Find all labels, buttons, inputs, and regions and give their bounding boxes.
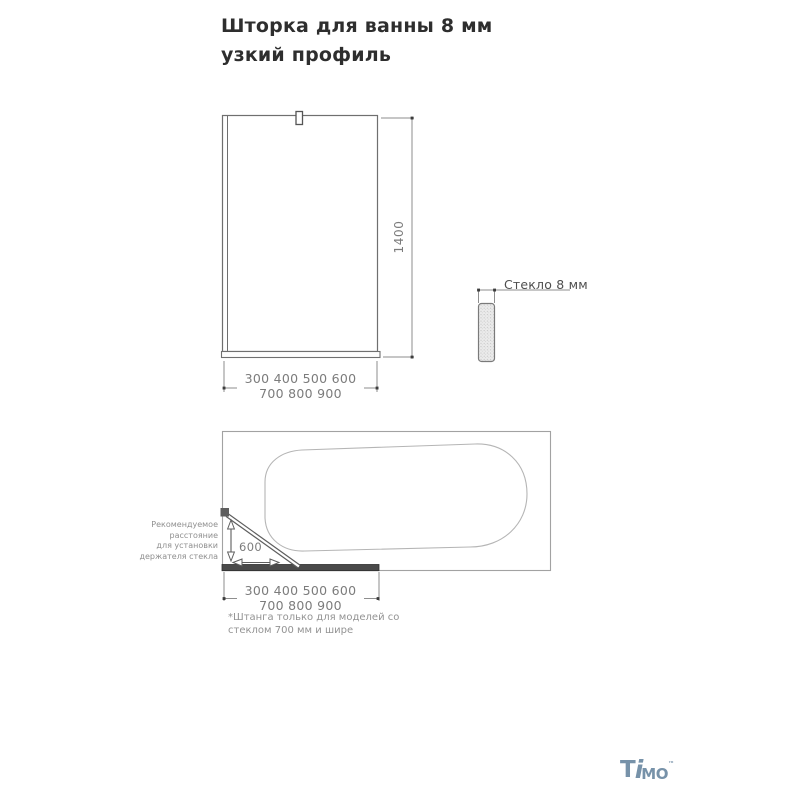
dim-endpoint-dot [411,356,414,359]
glass-panel-front [223,116,378,352]
page-title: Шторка для ванны 8 мм узкий профиль [221,12,561,69]
dim-endpoint-dot [477,289,480,292]
rod-footnote-line: *Штанга только для моделей со [228,611,399,624]
dim-endpoint-dot [377,597,380,600]
top-view-drawing [221,432,551,602]
glass-screen-top-view [222,565,379,571]
rod-footnote: *Штанга только для моделей со стеклом 70… [228,611,399,637]
hanger-bracket [296,112,303,125]
glass-holder-note-line: расстояние [128,531,218,542]
dim-endpoint-dot [223,597,226,600]
glass-holder-note: Рекомендуемое расстояние для установки д… [128,520,218,562]
logo-letters-mo: MO [641,767,668,782]
rod-distance-label: 600 [239,540,262,554]
trademark-symbol: ™ [668,760,675,768]
technical-drawing [0,0,800,800]
dim-endpoint-dot [223,387,226,390]
glass-cross-section [479,304,495,362]
dim-endpoint-dot [411,117,414,120]
height-dimension-label: 1400 [392,212,406,262]
front-width-dims-line1: 300 400 500 600 [237,372,364,387]
dim-endpoint-dot [376,387,379,390]
glass-holder-note-line: держателя стекла [128,552,218,563]
front-width-dimension-label: 300 400 500 600 700 800 900 [237,372,364,401]
glass-section-detail [477,289,570,362]
glass-holder-note-line: Рекомендуемое [128,520,218,531]
logo-letter-t: T [620,757,636,783]
top-width-dimension-label: 300 400 500 600 700 800 900 [237,584,364,613]
product-spec-page: Шторка для ванны 8 мм узкий профиль 1400… [0,0,800,800]
rod-footnote-line: стеклом 700 мм и шире [228,624,399,637]
timo-brand-logo: T i MO ™ [620,757,674,783]
bottom-seal-strip [222,352,381,358]
glass-holder-note-line: для установки [128,541,218,552]
dim-endpoint-dot [493,289,496,292]
glass-thickness-label: Стекло 8 мм [504,277,588,292]
rod-wall-anchor [221,508,230,517]
front-view-drawing [222,112,415,393]
top-width-dims-line1: 300 400 500 600 [237,584,364,599]
front-width-dims-line2: 700 800 900 [237,387,364,402]
